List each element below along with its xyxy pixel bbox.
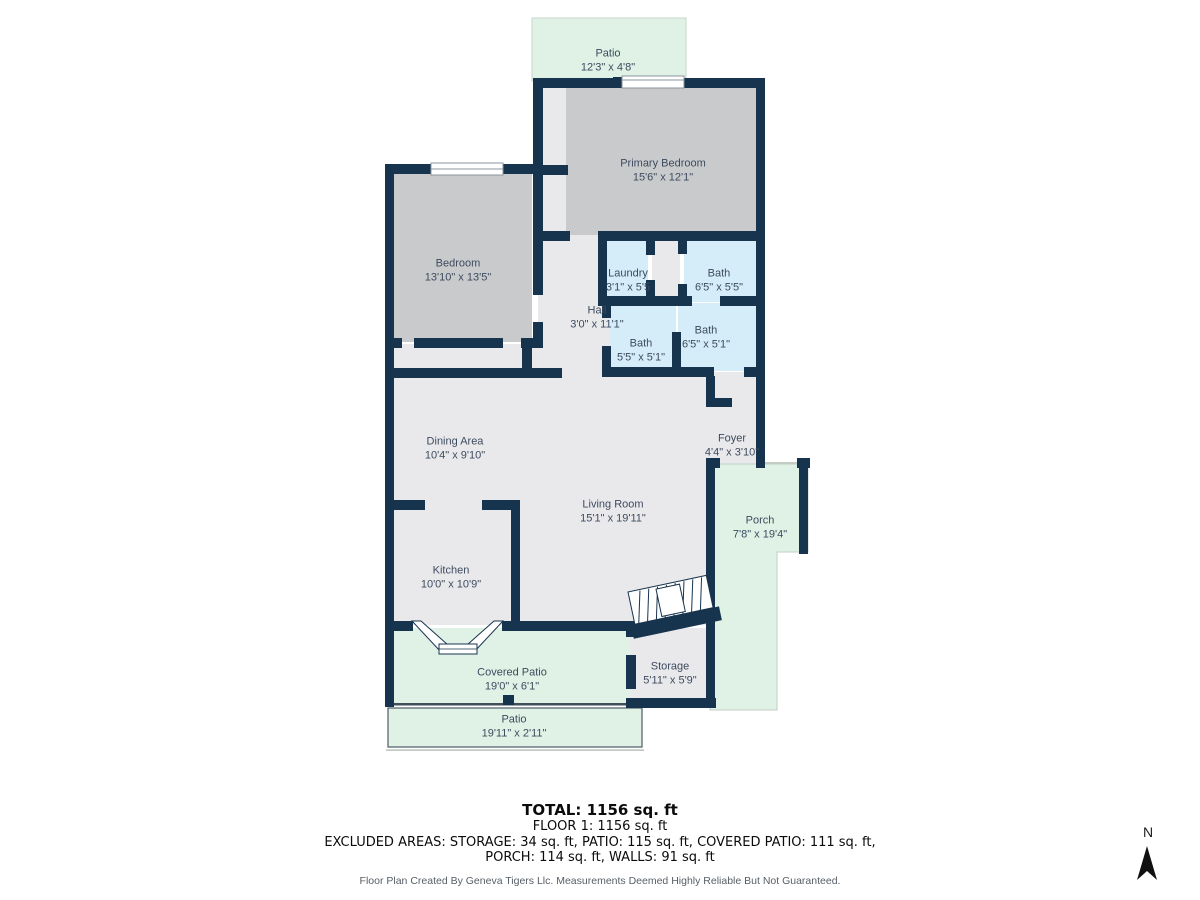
room-bedroom-fill — [392, 170, 532, 342]
room-label-bath-top: Bath6'5" x 5'5" — [695, 268, 743, 295]
room-label-kitchen: Kitchen10'0" x 10'9" — [421, 565, 481, 592]
room-label-bedroom: Bedroom13'10" x 13'5" — [425, 258, 491, 285]
floor-plan-page: Patio12'3" x 4'8" Primary Bedroom15'6" x… — [0, 0, 1200, 900]
porch-top-line — [765, 462, 798, 464]
room-corridor-fill — [543, 85, 568, 235]
vestibule-fill — [652, 238, 680, 303]
floor-area-text: FLOOR 1: 1156 sq. ft — [0, 819, 1200, 835]
room-label-dining-area: Dining Area10'4" x 9'10" — [425, 436, 485, 463]
room-label-patio-top: Patio12'3" x 4'8" — [581, 48, 635, 75]
room-label-foyer: Foyer4'4" x 3'10" — [705, 433, 759, 460]
compass: N — [1120, 824, 1176, 888]
excluded-areas-line2: PORCH: 114 sq. ft, WALLS: 91 sq. ft — [0, 850, 1200, 866]
closet-strip-fill — [392, 344, 562, 372]
patio-post — [503, 695, 514, 705]
room-label-primary-bedroom: Primary Bedroom15'6" x 12'1" — [620, 158, 706, 185]
floor-plan-canvas — [0, 0, 1200, 900]
room-label-covered-patio: Covered Patio19'0" x 6'1" — [477, 667, 547, 694]
room-porch-fill — [710, 464, 808, 710]
room-label-bath-right: Bath6'5" x 5'1" — [682, 325, 730, 352]
excluded-areas-line1: EXCLUDED AREAS: STORAGE: 34 sq. ft, PATI… — [0, 835, 1200, 851]
sliding-door-primary — [613, 76, 684, 88]
disclaimer-text: Floor Plan Created By Geneva Tigers Llc.… — [0, 875, 1200, 887]
room-label-porch: Porch7'8" x 19'4" — [733, 515, 787, 542]
room-label-hall: Hall3'0" x 11'1" — [570, 305, 623, 332]
room-label-laundry: Laundry3'1" x 5'5 — [606, 268, 650, 295]
room-label-storage: Storage5'11" x 5'9" — [643, 661, 696, 688]
patio-outer-line — [386, 750, 644, 751]
room-fills — [386, 18, 808, 751]
room-label-bath-left: Bath5'5" x 5'1" — [617, 338, 665, 365]
area-summary: TOTAL: 1156 sq. ft FLOOR 1: 1156 sq. ft … — [0, 801, 1200, 887]
window-bedroom — [431, 163, 503, 175]
total-area-text: TOTAL: 1156 sq. ft — [0, 801, 1200, 819]
compass-north-label: N — [1120, 824, 1176, 840]
room-label-living-room: Living Room15'1" x 19'11" — [580, 499, 646, 526]
room-label-patio-bottom: Patio19'11" x 2'11" — [482, 714, 547, 741]
